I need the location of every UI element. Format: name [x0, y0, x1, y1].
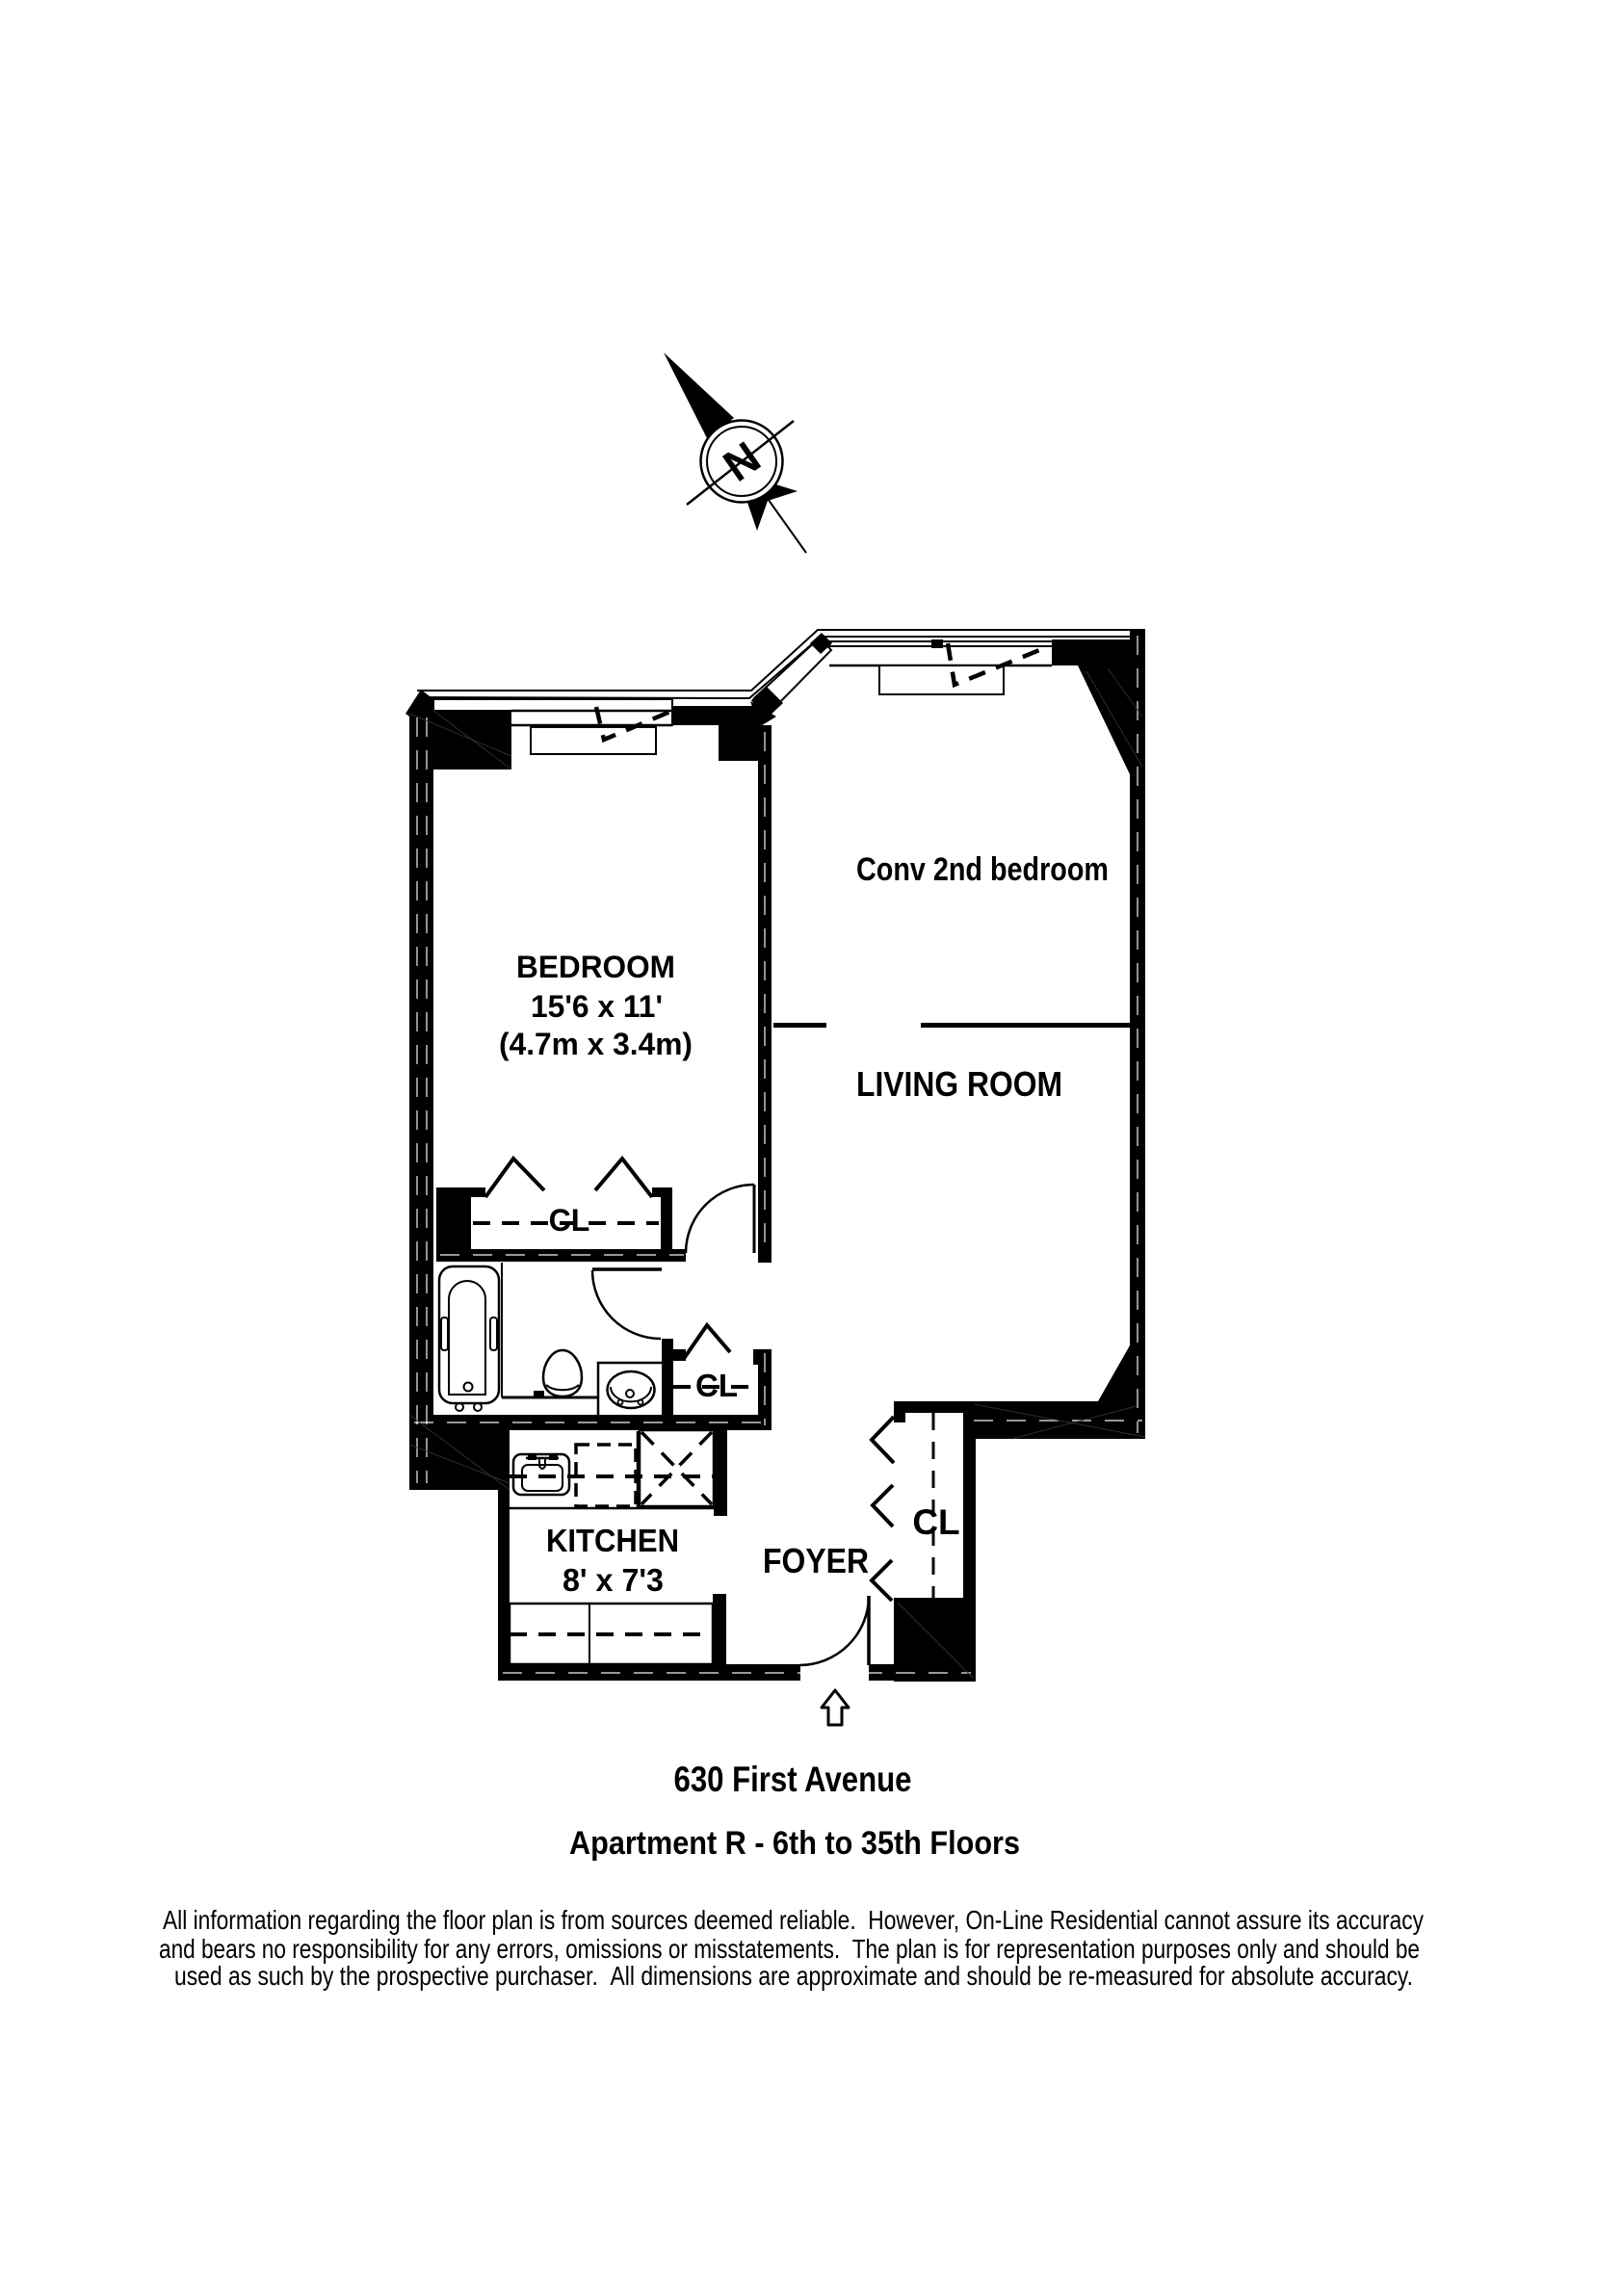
svg-text:All information regarding the: All information regarding the floor plan…: [163, 1905, 1424, 1935]
svg-text:Conv 2nd bedroom: Conv 2nd bedroom: [856, 851, 1109, 888]
svg-text:KITCHEN: KITCHEN: [546, 1523, 679, 1558]
svg-text:15'6 x 11': 15'6 x 11': [531, 989, 663, 1024]
svg-text:BEDROOM: BEDROOM: [516, 950, 675, 984]
svg-text:630 First Avenue: 630 First Avenue: [674, 1760, 912, 1799]
svg-text:CL: CL: [912, 1502, 959, 1542]
svg-text:8' x 7'3: 8' x 7'3: [562, 1562, 664, 1598]
svg-text:CL: CL: [695, 1368, 738, 1403]
svg-text:(4.7m x 3.4m): (4.7m x 3.4m): [499, 1027, 693, 1061]
svg-text:Apartment R - 6th to 35th Floo: Apartment R - 6th to 35th Floors: [569, 1825, 1020, 1862]
svg-text:FOYER: FOYER: [763, 1541, 869, 1580]
svg-text:LIVING ROOM: LIVING ROOM: [856, 1064, 1062, 1104]
svg-text:and bears no responsibility fo: and bears no responsibility for any erro…: [159, 1934, 1420, 1964]
svg-text:used as such by the prospectiv: used as such by the prospective purchase…: [174, 1961, 1413, 1991]
svg-text:CL: CL: [549, 1203, 590, 1238]
